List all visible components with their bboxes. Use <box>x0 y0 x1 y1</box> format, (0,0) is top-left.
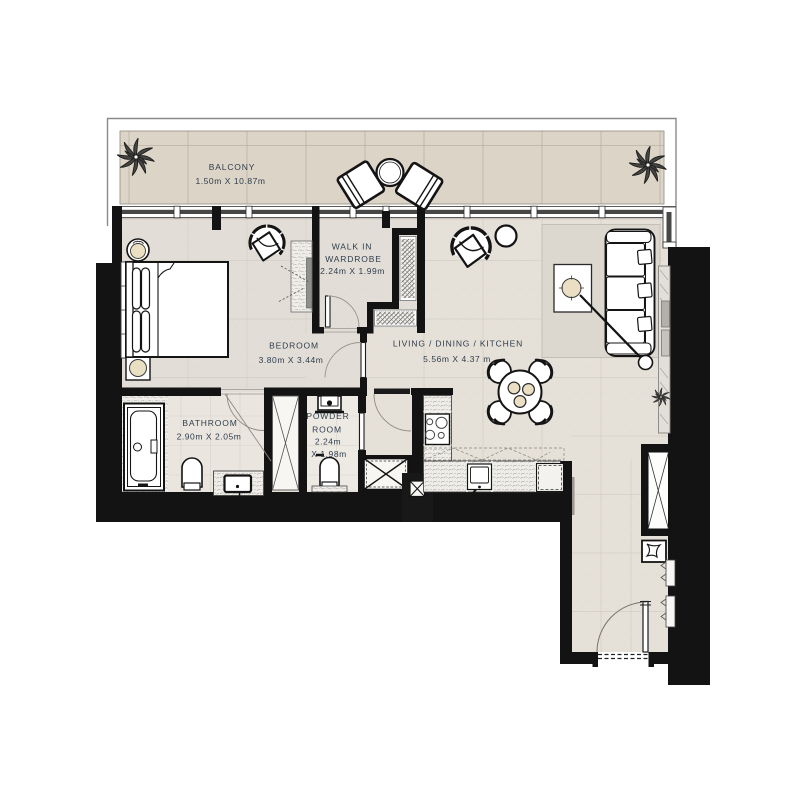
svg-text:2.24m X 1.99m: 2.24m X 1.99m <box>320 266 385 276</box>
svg-text:LIVING / DINING / KITCHEN: LIVING / DINING / KITCHEN <box>393 339 523 349</box>
svg-text:2.90m X 2.05m: 2.90m X 2.05m <box>177 432 242 442</box>
svg-text:5.56m X 4.37 m: 5.56m X 4.37 m <box>423 354 491 364</box>
svg-text:3.80m X 3.44m: 3.80m X 3.44m <box>259 355 324 365</box>
svg-text:BATHROOM: BATHROOM <box>182 418 237 428</box>
svg-text:BEDROOM: BEDROOM <box>269 341 319 351</box>
svg-text:1.50m X 10.87m: 1.50m X 10.87m <box>195 176 265 186</box>
svg-text:WALK IN: WALK IN <box>332 242 373 252</box>
svg-text:2.24m: 2.24m <box>315 437 341 447</box>
svg-text:BALCONY: BALCONY <box>209 162 256 172</box>
svg-text:X 1.98m: X 1.98m <box>311 449 347 459</box>
svg-text:WARDROBE: WARDROBE <box>325 254 382 264</box>
svg-text:POWDER: POWDER <box>306 411 349 421</box>
svg-text:ROOM: ROOM <box>312 425 342 435</box>
